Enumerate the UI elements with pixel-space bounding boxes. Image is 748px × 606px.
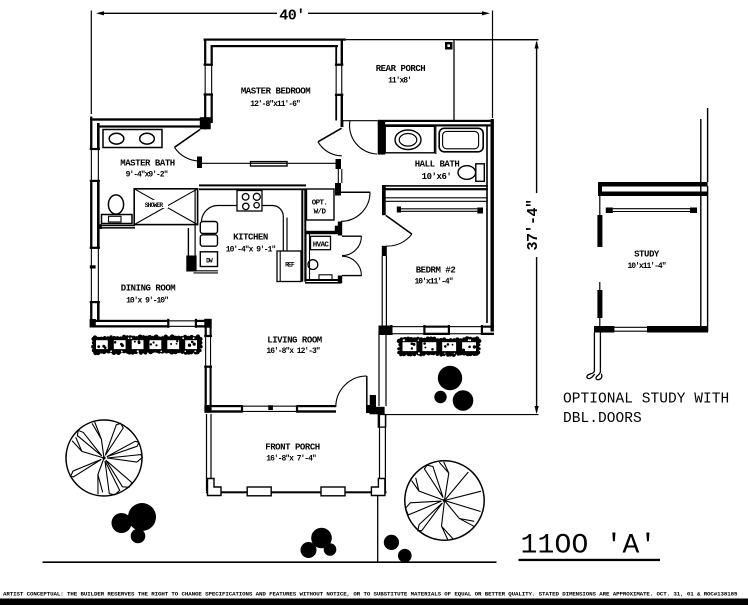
svg-text:10'-4"x 9'-1": 10'-4"x 9'-1" xyxy=(226,246,276,255)
svg-text:FRONT PORCH: FRONT PORCH xyxy=(265,443,320,453)
svg-text:OPT.: OPT. xyxy=(312,200,328,208)
svg-text:37'-4": 37'-4" xyxy=(525,199,542,250)
svg-text:40': 40' xyxy=(279,8,305,25)
svg-text:MASTER BEDROOM: MASTER BEDROOM xyxy=(241,87,310,97)
svg-text:DINING ROOM: DINING ROOM xyxy=(121,284,176,294)
svg-text:16'-8"x 12'-3": 16'-8"x 12'-3" xyxy=(266,347,319,356)
svg-text:11'x8': 11'x8' xyxy=(388,77,411,86)
svg-text:REAR PORCH: REAR PORCH xyxy=(376,64,426,74)
svg-text:DBL.DOORS: DBL.DOORS xyxy=(563,411,642,427)
svg-text:ARTIST CONCEPTUAL: THE BUILDER: ARTIST CONCEPTUAL: THE BUILDER RESERVES … xyxy=(3,591,738,598)
svg-text:LIVING ROOM: LIVING ROOM xyxy=(267,336,322,346)
svg-text:STUDY: STUDY xyxy=(634,249,660,259)
svg-text:OPTIONAL STUDY WITH: OPTIONAL STUDY WITH xyxy=(563,392,729,408)
svg-text:10'x11'-4": 10'x11'-4" xyxy=(414,277,452,286)
svg-text:MASTER BATH: MASTER BATH xyxy=(120,158,175,168)
svg-text:SHOWER: SHOWER xyxy=(145,202,164,209)
svg-text:12'-8"x11'-6": 12'-8"x11'-6" xyxy=(250,100,300,109)
svg-text:HVAC: HVAC xyxy=(313,241,330,249)
svg-text:W/D: W/D xyxy=(314,209,327,217)
svg-text:10'x11'-4": 10'x11'-4" xyxy=(627,262,665,271)
svg-text:16'-8"x 7'-4": 16'-8"x 7'-4" xyxy=(266,455,316,464)
svg-text:11OO 'A': 11OO 'A' xyxy=(521,531,657,562)
svg-text:9'-4"x9'-2": 9'-4"x9'-2" xyxy=(126,171,168,180)
svg-text:REF: REF xyxy=(285,262,295,269)
svg-text:KITCHEN: KITCHEN xyxy=(233,233,268,243)
svg-text:10'x6': 10'x6' xyxy=(422,172,452,182)
svg-text:BEDRM #2: BEDRM #2 xyxy=(416,266,456,276)
svg-text:HALL BATH: HALL BATH xyxy=(415,159,460,169)
svg-text:10'x 9'-10": 10'x 9'-10" xyxy=(126,297,168,306)
